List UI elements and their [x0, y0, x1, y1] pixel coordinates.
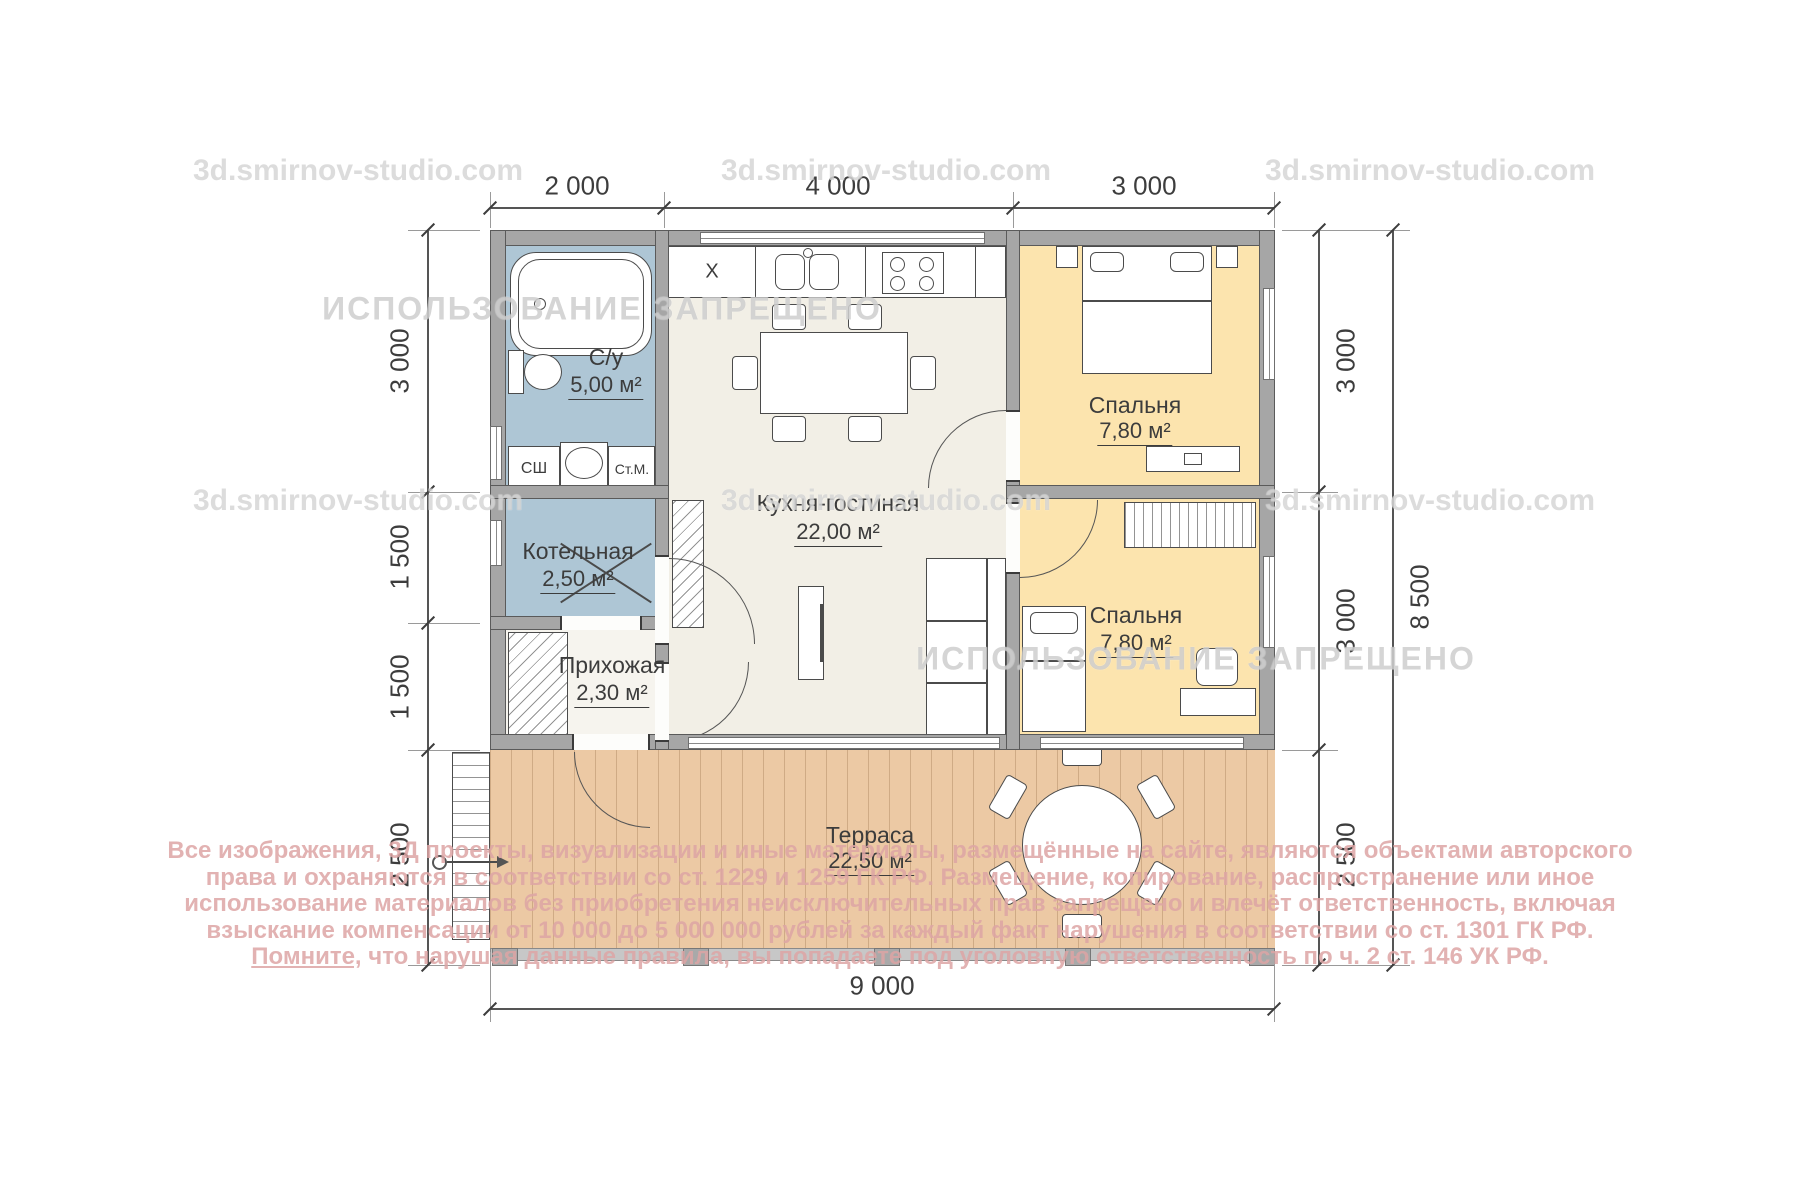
bathroom-window: [490, 426, 502, 480]
bathroom-label: С/у: [589, 344, 624, 371]
counter-divider: [755, 247, 756, 297]
desk: [1180, 688, 1256, 716]
dining-chair: [848, 416, 882, 442]
dining-chair: [732, 356, 758, 390]
bathroom-door-opening: [655, 555, 669, 645]
dim-ext: [1013, 192, 1014, 228]
bathroom-area: 5,00 м²: [568, 372, 643, 400]
hallway-wardrobe: [508, 632, 568, 748]
dim-line-bottom: [490, 1008, 1275, 1010]
kitchen-sink-bowl: [775, 254, 805, 290]
dryer-label: СШ: [521, 460, 547, 478]
bedroom2-wardrobe: [1124, 502, 1256, 548]
studio-watermark: 3d.smirnov-studio.com: [721, 484, 1051, 518]
dim-bottom: 9 000: [849, 971, 914, 1002]
bathroom-sink-bowl: [565, 447, 603, 479]
boiler-area: 2,50 м²: [540, 566, 615, 594]
dim-ext: [490, 192, 491, 228]
tv-screen: [820, 604, 824, 662]
boiler-window: [490, 520, 502, 566]
sofa-cushion-line: [927, 620, 987, 622]
nightstand: [1056, 246, 1078, 268]
legal-remember: Помните,: [251, 943, 361, 970]
toilet-tank: [508, 350, 524, 394]
stove-burner: [919, 276, 934, 291]
dim-ext: [408, 623, 480, 624]
sofa-cushion-line: [927, 682, 987, 684]
dim-ext: [664, 192, 665, 228]
stove-burner: [890, 257, 905, 272]
legal-line5-rest: что нарушая данные правила, вы попадаете…: [362, 943, 1549, 970]
studio-watermark: 3d.smirnov-studio.com: [193, 484, 523, 518]
nightstand: [1216, 246, 1238, 268]
pillow: [1090, 252, 1124, 272]
hallway-terrace-door-opening: [572, 734, 650, 750]
bedroom2-label: Спальня: [1090, 602, 1182, 629]
toilet-bowl: [524, 354, 562, 390]
studio-watermark: 3d.smirnov-studio.com: [1265, 484, 1595, 518]
washer-label: Ст.М.: [615, 461, 649, 477]
dim-ext: [1282, 750, 1338, 751]
bedroom1-area: 7,80 м²: [1097, 418, 1172, 446]
bedroom1-label: Спальня: [1089, 392, 1181, 419]
legal-line: Помните, что нарушая данные правила, вы …: [40, 944, 1760, 971]
dining-table: [760, 332, 908, 414]
dim-top-3: 3 000: [1111, 171, 1176, 202]
studio-watermark: 3d.smirnov-studio.com: [193, 154, 523, 188]
hallway-area: 2,30 м²: [574, 680, 649, 708]
stove-burner: [919, 257, 934, 272]
dresser-handle: [1184, 453, 1202, 465]
bedroom2-window: [1263, 556, 1275, 648]
dim-right-1: 3 000: [1331, 328, 1362, 393]
pillow: [1170, 252, 1204, 272]
kitchen-faucet: [803, 248, 813, 258]
blanket-line: [1083, 300, 1211, 302]
kitchen-top-window: [700, 232, 985, 244]
dim-top-1: 2 000: [544, 171, 609, 202]
studio-watermark: 3d.smirnov-studio.com: [721, 154, 1051, 188]
legal-line: права и охраняются в соответствии со ст.…: [40, 865, 1760, 892]
studio-watermark: 3d.smirnov-studio.com: [1265, 154, 1595, 188]
dim-line-top: [490, 207, 1275, 209]
dining-chair: [772, 416, 806, 442]
boiler-door-opening: [560, 616, 642, 630]
pillow: [1030, 612, 1078, 634]
fridge-label: Х: [705, 261, 718, 284]
hallway-label: Прихожая: [559, 652, 666, 679]
legal-line: взыскание компенсации от 10 000 до 5 000…: [40, 918, 1760, 945]
forbidden-watermark: ИСПОЛЬЗОВАНИЕ ЗАПРЕЩЕНО: [322, 291, 882, 328]
bedroom2-terrace-glazing: [1040, 737, 1244, 749]
legal-line: использование материалов без приобретени…: [40, 891, 1760, 918]
kitchen-area: 22,00 м²: [794, 519, 882, 547]
dim-left-1: 3 000: [385, 328, 416, 393]
dim-right-total: 8 500: [1405, 564, 1436, 629]
bedroom1-window: [1263, 288, 1275, 380]
dim-ext: [1274, 192, 1275, 228]
dim-ext: [408, 230, 480, 231]
floor-plan-canvas: С/у 5,00 м² Котельная 2,50 м² Прихожая 2…: [0, 0, 1800, 1200]
counter-divider: [975, 247, 976, 297]
counter-divider: [865, 247, 866, 297]
dim-left-2: 1 500: [385, 524, 416, 589]
kitchen-terrace-glazing: [688, 737, 1000, 749]
legal-notice: Все изображения, 3Д проекты, визуализаци…: [40, 838, 1760, 971]
boiler-label: Котельная: [522, 538, 633, 565]
dim-ext: [408, 750, 480, 751]
kitchen-sink-bowl: [809, 254, 839, 290]
bedroom1-door-opening: [1006, 410, 1020, 482]
legal-line: Все изображения, 3Д проекты, визуализаци…: [40, 838, 1760, 865]
forbidden-watermark: ИСПОЛЬЗОВАНИЕ ЗАПРЕЩЕНО: [916, 641, 1476, 678]
stove-burner: [890, 276, 905, 291]
dining-chair: [910, 356, 936, 390]
dim-left-3: 1 500: [385, 654, 416, 719]
